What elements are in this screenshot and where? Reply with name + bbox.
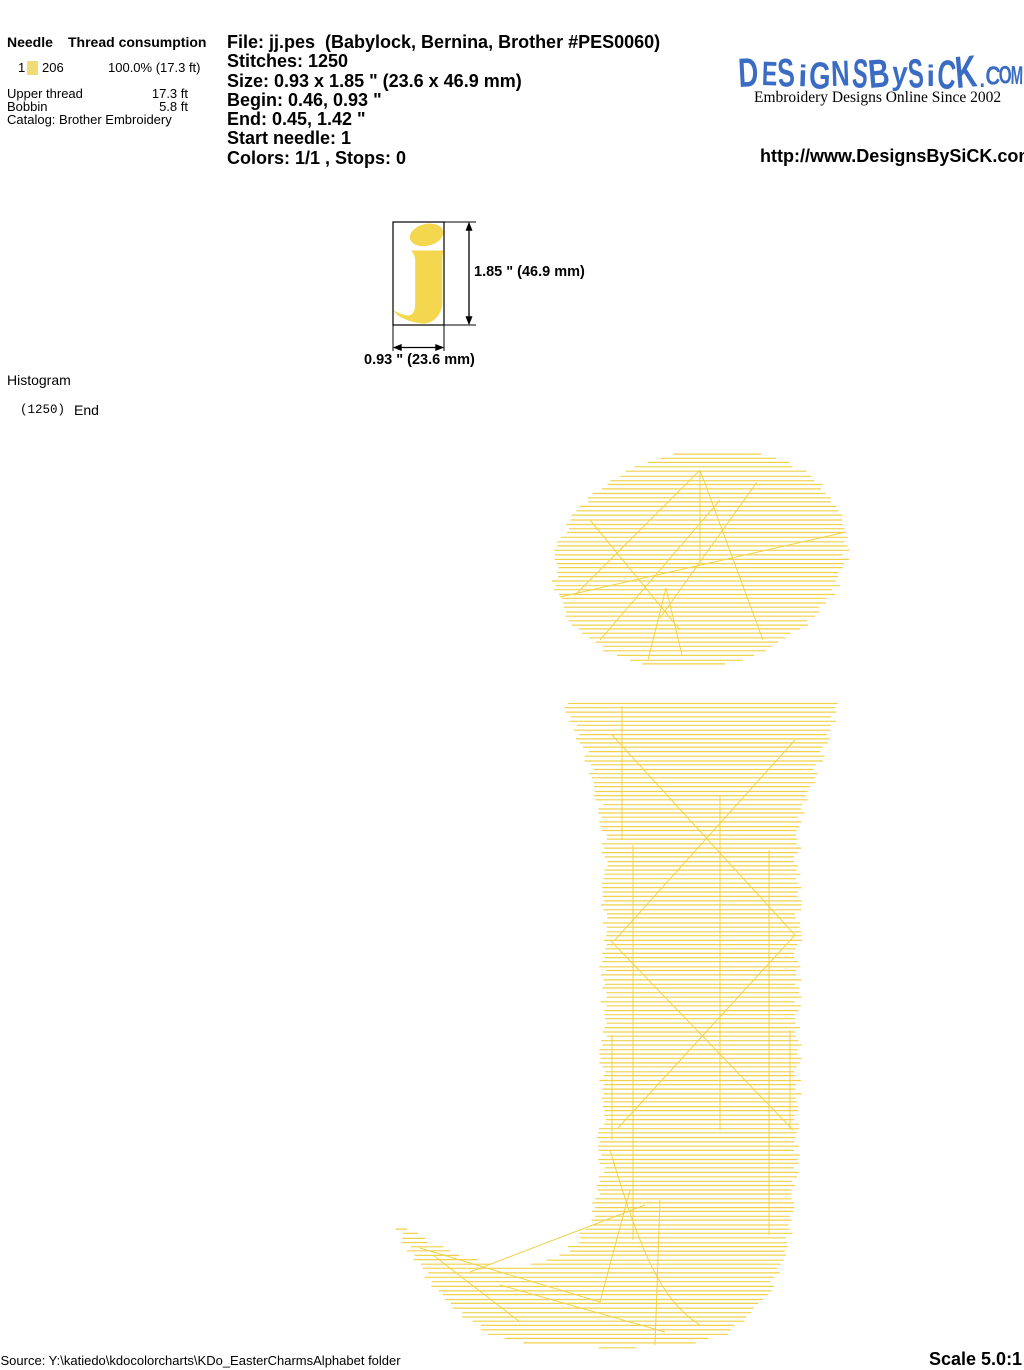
svg-text:M: M xyxy=(1010,60,1023,90)
svg-text:E: E xyxy=(761,55,778,94)
svg-text:N: N xyxy=(830,52,850,94)
